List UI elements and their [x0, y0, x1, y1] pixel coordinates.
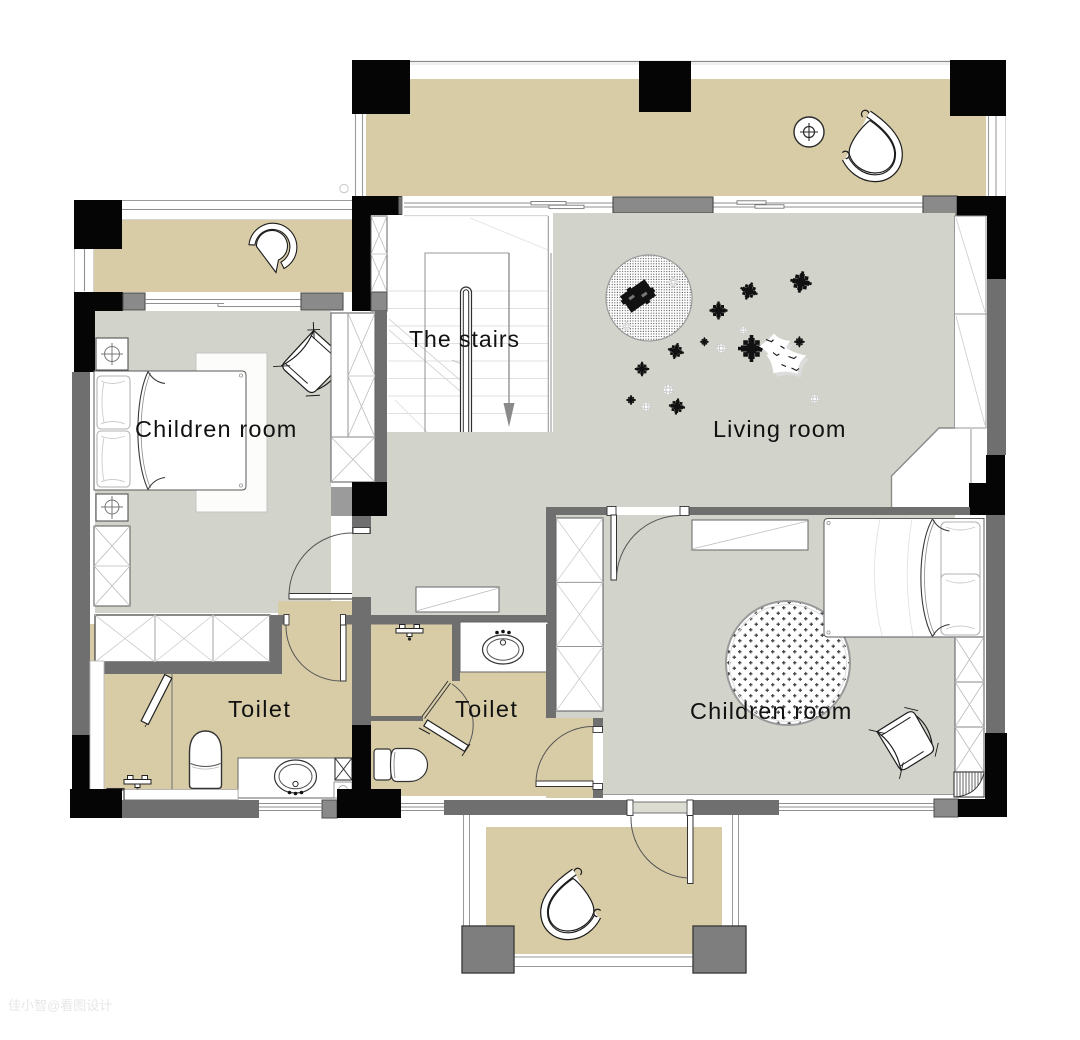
svg-text:Children room: Children room: [690, 698, 853, 724]
svg-text:Toilet: Toilet: [455, 696, 518, 722]
svg-text:佳小智@看图设计: 佳小智@看图设计: [8, 998, 112, 1013]
svg-text:Toilet: Toilet: [228, 696, 291, 722]
svg-text:Children room: Children room: [135, 416, 298, 442]
svg-text:Living room: Living room: [713, 416, 847, 442]
svg-text:The stairs: The stairs: [409, 326, 520, 352]
